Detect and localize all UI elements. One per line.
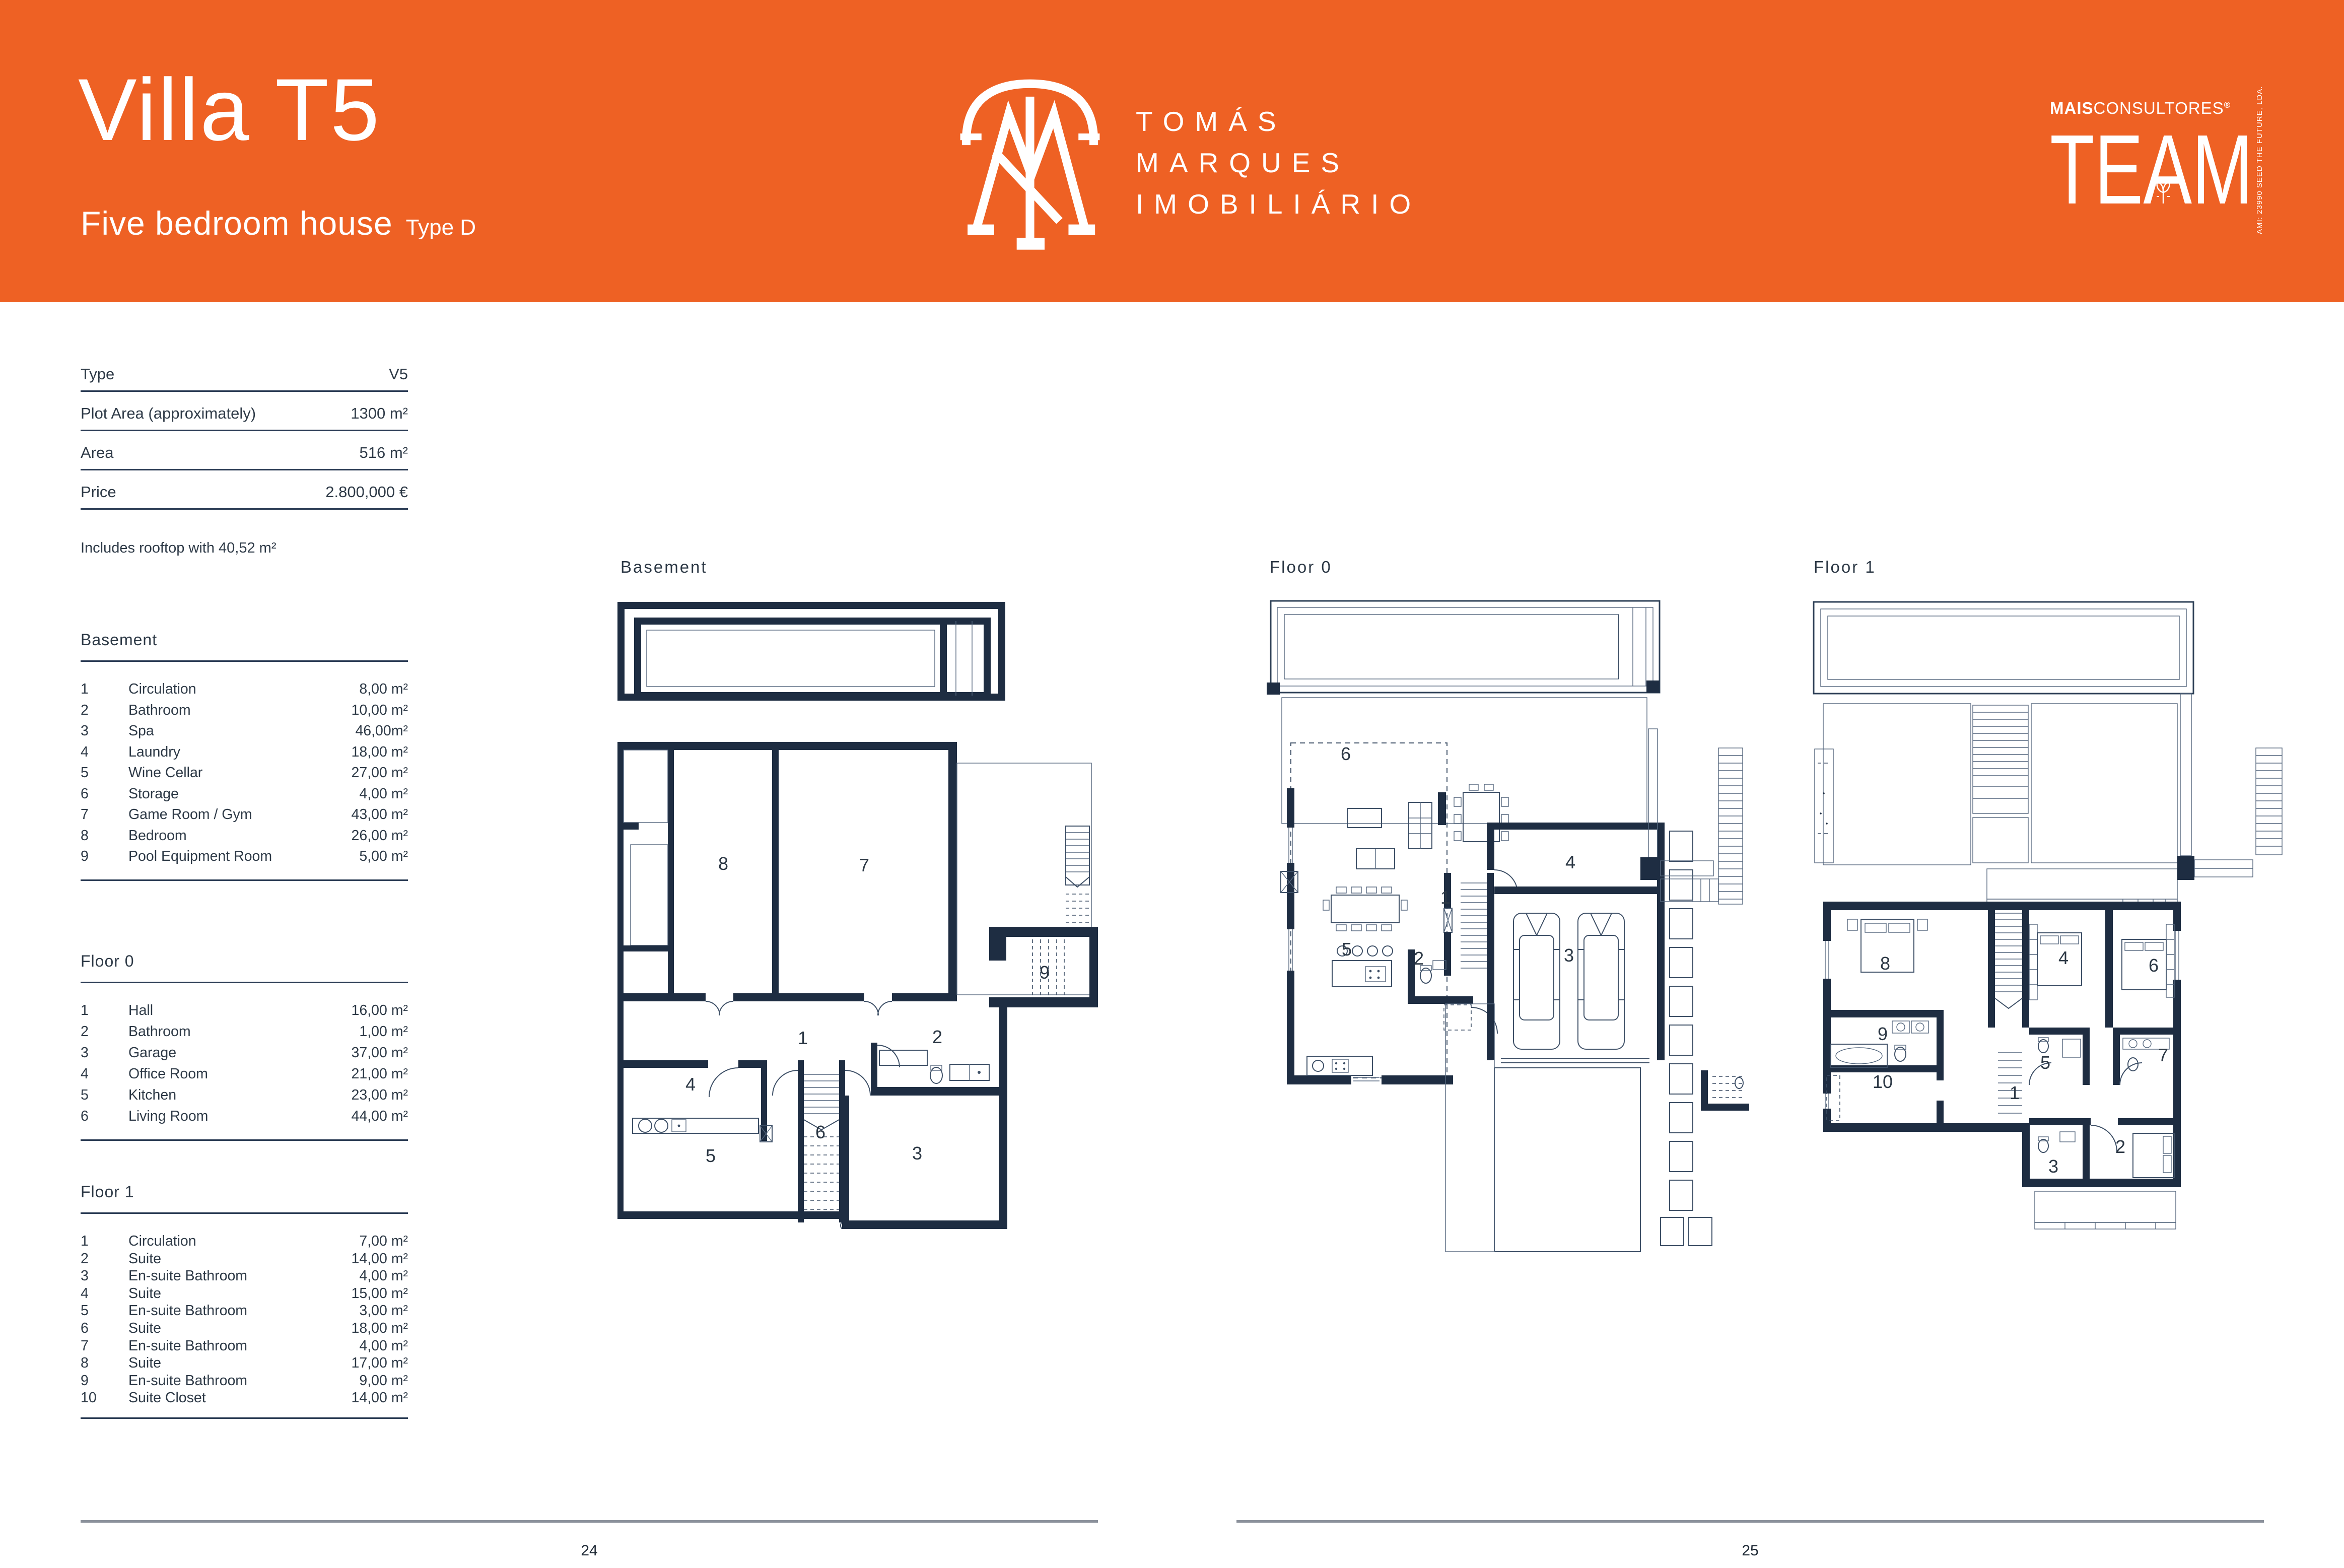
- room-name: En-suite Bathroom: [128, 1268, 359, 1284]
- spec-row: Type V5: [81, 353, 408, 392]
- room-number-label: 2: [932, 1027, 942, 1047]
- floorplan-floor0: Floor 0: [1267, 558, 1841, 1272]
- room-area: 1,00 m²: [359, 1024, 408, 1040]
- section-rule: [81, 982, 408, 983]
- spec-value: V5: [389, 365, 408, 383]
- basement-plan-drawing: 879124563: [617, 597, 1134, 1229]
- section-rule: [81, 660, 408, 662]
- room-number: 9: [81, 848, 128, 865]
- room-number-label: 6: [2149, 955, 2159, 976]
- room-name: Pool Equipment Room: [128, 848, 359, 865]
- room-number: 6: [81, 786, 128, 802]
- room-numbers: 879124563: [685, 853, 1050, 1166]
- brochure-page: Villa T5 Five bedroom houseType D TOMÁS …: [0, 0, 2344, 1568]
- subtitle-row: Five bedroom houseType D: [81, 204, 476, 242]
- room-row: 3 Garage 37,00 m²: [81, 1045, 408, 1066]
- room-area: 46,00m²: [355, 723, 408, 739]
- room-row: 9 En-suite Bathroom 9,00 m²: [81, 1373, 408, 1390]
- page-title: Villa T5: [78, 59, 381, 161]
- section-floor1: Floor 1 1 Circulation 7,00 m² 2 Suite 14…: [81, 1183, 408, 1419]
- room-row: 5 Kitchen 23,00 m²: [81, 1087, 408, 1108]
- room-number-label: 3: [2048, 1156, 2058, 1177]
- room-name: Suite: [128, 1355, 352, 1372]
- room-area: 9,00 m²: [359, 1373, 408, 1389]
- room-row: 5 En-suite Bathroom 3,00 m²: [81, 1303, 408, 1320]
- section-end-rule: [81, 1139, 408, 1141]
- room-row: 5 Wine Cellar 27,00 m²: [81, 765, 408, 786]
- floorplan-basement: Basement: [617, 558, 1134, 1229]
- room-number: 3: [81, 723, 128, 739]
- room-number-label: 4: [1565, 852, 1575, 872]
- header-band: Villa T5 Five bedroom houseType D TOMÁS …: [0, 0, 2344, 302]
- room-name: Suite: [128, 1285, 352, 1302]
- room-row: 9 Pool Equipment Room 5,00 m²: [81, 848, 408, 869]
- room-name: Office Room: [128, 1066, 352, 1082]
- room-number: 5: [81, 765, 128, 781]
- spec-label: Area: [81, 444, 113, 462]
- room-number-label: 1: [2010, 1082, 2020, 1103]
- section-rule: [81, 1212, 408, 1214]
- room-name: En-suite Bathroom: [128, 1338, 359, 1354]
- room-number: 2: [81, 1024, 128, 1040]
- room-number: 6: [81, 1320, 128, 1337]
- footer-rule-left: [81, 1520, 1098, 1523]
- room-area: 26,00 m²: [352, 828, 408, 844]
- room-number-label: 9: [1040, 962, 1050, 983]
- registered-mark: ®: [2224, 100, 2231, 110]
- room-number: 7: [81, 1338, 128, 1354]
- room-number-label: 10: [1873, 1071, 1893, 1092]
- room-name: Circulation: [128, 1233, 359, 1250]
- room-area: 4,00 m²: [359, 1268, 408, 1284]
- room-name: Laundry: [128, 744, 352, 761]
- section-title: Floor 1: [81, 1183, 408, 1201]
- room-number-label: 7: [2158, 1045, 2168, 1065]
- room-area: 14,00 m²: [352, 1251, 408, 1267]
- room-row: 6 Suite 18,00 m²: [81, 1320, 408, 1338]
- room-number-label: 3: [1564, 945, 1574, 966]
- room-number-label: 1: [798, 1028, 808, 1048]
- room-number: 4: [81, 744, 128, 761]
- room-number-label: 6: [1341, 743, 1351, 764]
- room-row: 8 Suite 17,00 m²: [81, 1355, 408, 1373]
- room-name: Spa: [128, 723, 355, 739]
- room-name: Hall: [128, 1002, 352, 1019]
- room-name: Living Room: [128, 1108, 352, 1125]
- room-area: 23,00 m²: [352, 1087, 408, 1104]
- team-ami-side-text: AMI: 23990 SEED THE FUTURE, LDA.: [2255, 131, 2264, 234]
- room-number-label: 8: [718, 853, 728, 874]
- room-number: 7: [81, 806, 128, 823]
- plan-label: Floor 1: [1814, 558, 1876, 577]
- brand-line-3: IMOBILIÁRIO: [1136, 183, 1421, 225]
- room-row: 1 Hall 16,00 m²: [81, 1002, 408, 1024]
- room-number: 2: [81, 702, 128, 719]
- room-row: 2 Bathroom 10,00 m²: [81, 702, 408, 723]
- room-number: 6: [81, 1108, 128, 1125]
- room-number-label: 2: [1414, 948, 1424, 969]
- room-area: 8,00 m²: [359, 681, 408, 698]
- room-number-label: 5: [1342, 939, 1352, 960]
- room-area: 3,00 m²: [359, 1303, 408, 1319]
- room-name: Bathroom: [128, 702, 352, 719]
- rooftop-note: Includes rooftop with 40,52 m²: [81, 540, 276, 557]
- brand-line-2: MARQUES: [1136, 142, 1421, 183]
- room-number-label: 4: [2058, 947, 2069, 968]
- room-area: 5,00 m²: [359, 848, 408, 865]
- room-row: 6 Storage 4,00 m²: [81, 786, 408, 807]
- room-row: 8 Bedroom 26,00 m²: [81, 828, 408, 849]
- room-row: 7 En-suite Bathroom 4,00 m²: [81, 1338, 408, 1355]
- room-name: Suite Closet: [128, 1390, 352, 1406]
- section-end-rule: [81, 1417, 408, 1419]
- room-row: 4 Suite 15,00 m²: [81, 1285, 408, 1303]
- room-area: 10,00 m²: [352, 702, 408, 719]
- room-area: 21,00 m²: [352, 1066, 408, 1082]
- room-number-label: 6: [815, 1122, 825, 1142]
- room-number: 4: [81, 1285, 128, 1302]
- room-row: 2 Suite 14,00 m²: [81, 1251, 408, 1268]
- room-numbers: 641253: [1341, 743, 1575, 969]
- room-number: 3: [81, 1268, 128, 1284]
- page-number-left: 24: [564, 1542, 614, 1559]
- room-area: 27,00 m²: [352, 765, 408, 781]
- room-name: Bedroom: [128, 828, 352, 844]
- room-number-label: 3: [912, 1143, 922, 1164]
- floor0-plan-drawing: 641253: [1267, 597, 1841, 1272]
- room-row: 3 En-suite Bathroom 4,00 m²: [81, 1268, 408, 1285]
- room-number: 8: [81, 828, 128, 844]
- brand-wordmark: TOMÁS MARQUES IMOBILIÁRIO: [1136, 101, 1421, 225]
- room-number: 2: [81, 1251, 128, 1267]
- type-variant-label: Type D: [406, 215, 476, 240]
- room-number-label: 5: [2040, 1052, 2050, 1073]
- room-row: 3 Spa 46,00m²: [81, 723, 408, 744]
- room-row: 4 Office Room 21,00 m²: [81, 1066, 408, 1087]
- spec-label: Price: [81, 483, 116, 501]
- room-list: 1 Circulation 7,00 m² 2 Suite 14,00 m² 3…: [81, 1233, 408, 1407]
- page-subtitle: Five bedroom house: [81, 204, 393, 242]
- room-row: 7 Game Room / Gym 43,00 m²: [81, 806, 408, 828]
- room-area: 17,00 m²: [352, 1355, 408, 1372]
- tm-monogram-icon: [957, 71, 1103, 257]
- room-number-label: 7: [859, 855, 869, 875]
- room-area: 44,00 m²: [352, 1108, 408, 1125]
- spec-row: Area 516 m²: [81, 431, 408, 470]
- room-name: Game Room / Gym: [128, 806, 352, 823]
- spec-row: Price 2.800,000 €: [81, 470, 408, 510]
- room-list: 1 Hall 16,00 m² 2 Bathroom 1,00 m² 3 Gar…: [81, 1002, 408, 1129]
- room-number: 5: [81, 1087, 128, 1104]
- footer-rule-right: [1236, 1520, 2264, 1523]
- room-number: 4: [81, 1066, 128, 1082]
- room-number: 9: [81, 1373, 128, 1389]
- room-number: 5: [81, 1303, 128, 1319]
- spec-value: 2.800,000 €: [325, 483, 408, 501]
- spec-row: Plot Area (approximately) 1300 m²: [81, 392, 408, 431]
- room-area: 43,00 m²: [352, 806, 408, 823]
- spec-label: Plot Area (approximately): [81, 404, 256, 423]
- room-number: 1: [81, 681, 128, 698]
- page-number-right: 25: [1725, 1542, 1775, 1559]
- plan-label: Basement: [621, 558, 708, 577]
- room-name: Kitchen: [128, 1087, 352, 1104]
- room-row: 2 Bathroom 1,00 m²: [81, 1024, 408, 1045]
- floorplan-floor1: Floor 1: [1811, 558, 2339, 1242]
- room-area: 15,00 m²: [352, 1285, 408, 1302]
- spec-label: Type: [81, 365, 114, 383]
- room-area: 14,00 m²: [352, 1390, 408, 1406]
- section-title: Basement: [81, 631, 408, 649]
- section-end-rule: [81, 879, 408, 881]
- room-number: 10: [81, 1390, 128, 1406]
- room-name: Suite: [128, 1251, 352, 1267]
- room-number-label: 1: [1440, 887, 1451, 908]
- plan-label: Floor 0: [1270, 558, 1332, 577]
- team-wordmark: TEAM: [2050, 127, 2218, 213]
- room-number: 3: [81, 1045, 128, 1061]
- room-area: 4,00 m²: [359, 1338, 408, 1354]
- section-basement: Basement 1 Circulation 8,00 m² 2 Bathroo…: [81, 631, 408, 881]
- room-number: 1: [81, 1002, 128, 1019]
- room-name: En-suite Bathroom: [128, 1303, 359, 1319]
- room-area: 7,00 m²: [359, 1233, 408, 1250]
- room-area: 18,00 m²: [352, 1320, 408, 1337]
- room-numbers: 89104657123: [1873, 947, 2168, 1177]
- room-row: 6 Living Room 44,00 m²: [81, 1108, 408, 1129]
- room-area: 4,00 m²: [359, 786, 408, 802]
- room-area: 18,00 m²: [352, 744, 408, 761]
- room-number: 1: [81, 1233, 128, 1250]
- room-number-label: 2: [2115, 1136, 2125, 1157]
- section-title: Floor 0: [81, 952, 408, 971]
- room-area: 16,00 m²: [352, 1002, 408, 1019]
- room-number-label: 8: [1880, 953, 1890, 974]
- floor1-plan-drawing: 89104657123: [1811, 597, 2339, 1242]
- room-row: 4 Laundry 18,00 m²: [81, 744, 408, 765]
- section-floor0: Floor 0 1 Hall 16,00 m² 2 Bathroom 1,00 …: [81, 952, 408, 1141]
- spec-value: 1300 m²: [351, 404, 408, 423]
- spec-table: Type V5 Plot Area (approximately) 1300 m…: [81, 353, 408, 510]
- room-number: 8: [81, 1355, 128, 1372]
- room-name: Garage: [128, 1045, 352, 1061]
- room-number-label: 4: [685, 1074, 696, 1095]
- room-row: 1 Circulation 8,00 m²: [81, 681, 408, 702]
- room-name: Suite: [128, 1320, 352, 1337]
- room-area: 37,00 m²: [352, 1045, 408, 1061]
- room-name: En-suite Bathroom: [128, 1373, 359, 1389]
- room-name: Wine Cellar: [128, 765, 352, 781]
- room-row: 1 Circulation 7,00 m²: [81, 1233, 408, 1251]
- room-name: Bathroom: [128, 1024, 359, 1040]
- room-name: Storage: [128, 786, 359, 802]
- room-name: Circulation: [128, 681, 359, 698]
- team-logo: MAISCONSULTORES® TEAM AMI: 23990 SEED TH…: [2050, 99, 2277, 213]
- brand-line-1: TOMÁS: [1136, 101, 1421, 142]
- room-row: 10 Suite Closet 14,00 m²: [81, 1390, 408, 1407]
- seed-sprout-icon: [2155, 178, 2172, 204]
- room-list: 1 Circulation 8,00 m² 2 Bathroom 10,00 m…: [81, 681, 408, 869]
- room-number-label: 9: [1878, 1024, 1888, 1044]
- spec-value: 516 m²: [360, 444, 408, 462]
- room-number-label: 5: [706, 1145, 716, 1166]
